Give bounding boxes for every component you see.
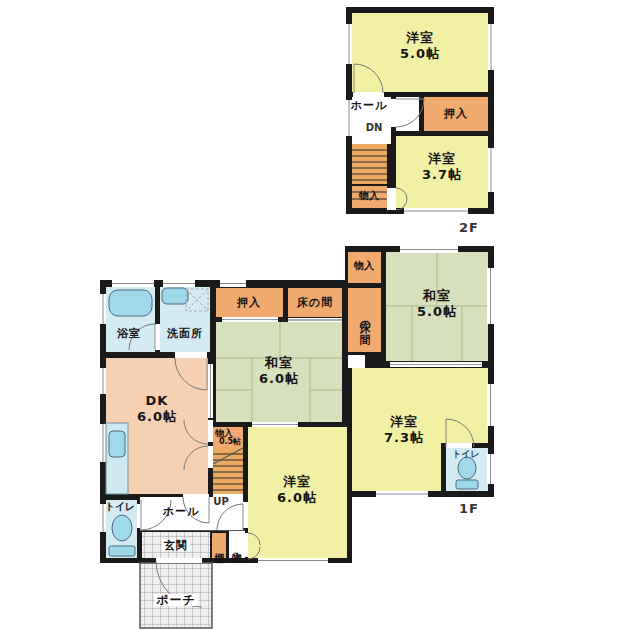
room-size: 3.7帖 bbox=[422, 167, 462, 183]
stairs-up-label: UP bbox=[213, 497, 228, 507]
room-label-genkan: 玄関 bbox=[162, 540, 190, 551]
toilet-tank-right bbox=[456, 480, 478, 489]
closet-monoire-bottom bbox=[229, 530, 245, 558]
room-size: 7.3帖 bbox=[384, 430, 424, 446]
washbasin bbox=[162, 288, 188, 304]
room-label-toilet-left: トイレ bbox=[105, 502, 136, 512]
room-label-western-73: 洋室 7.3帖 bbox=[384, 414, 424, 447]
room-label-washroom: 洗面所 bbox=[167, 328, 203, 339]
room-name: 和室 bbox=[259, 355, 299, 371]
room-name: DK bbox=[137, 393, 177, 409]
room-label-hall-1f: ホール bbox=[163, 506, 200, 517]
closet-label-monoire-2f: 物入 bbox=[359, 191, 379, 201]
closet-label-oshiire-2f: 押入 bbox=[444, 108, 468, 119]
room-label-japanese-5: 和室 5.0帖 bbox=[417, 288, 457, 321]
shelf-tana bbox=[212, 533, 226, 558]
kitchen-sink bbox=[109, 431, 125, 457]
room-label-porch: ポーチ bbox=[154, 594, 198, 606]
room-label-hall-2f: ホール bbox=[351, 100, 388, 111]
room-name: 洋室 bbox=[422, 151, 462, 167]
floor-label-1f: 1F bbox=[459, 502, 479, 515]
room-name: 洋室 bbox=[400, 30, 440, 46]
floor-plan: 洋室 5.0帖 ホール DN 押入 洋室 3.7帖 物入 2F 物入 和室 5.… bbox=[0, 0, 640, 640]
room-label-dk: DK 6.0帖 bbox=[137, 393, 177, 426]
room-name: 洋室 bbox=[384, 414, 424, 430]
room-size: 6.0帖 bbox=[137, 409, 177, 425]
toilet-bowl-right bbox=[458, 457, 476, 479]
room-label-japanese-6: 和室 6.0帖 bbox=[259, 355, 299, 388]
room-label-western-6: 洋室 6.0帖 bbox=[277, 474, 317, 507]
closet-label-oshiire-1f: 押入 bbox=[237, 297, 261, 308]
closet-size-monoire-stairs: 0.5帖 bbox=[219, 438, 241, 446]
room-label-western-5-2f: 洋室 5.0帖 bbox=[400, 30, 440, 63]
room-label-western-37-2f: 洋室 3.7帖 bbox=[422, 151, 462, 184]
toilet-bowl-left bbox=[112, 515, 132, 541]
room-size: 5.0帖 bbox=[417, 304, 457, 320]
room-size: 6.0帖 bbox=[277, 490, 317, 506]
closet-label-monoire-top: 物入 bbox=[354, 261, 374, 271]
room-label-bathroom: 浴室 bbox=[117, 328, 141, 339]
room-label-toilet-right: トイレ bbox=[452, 450, 480, 459]
alcove-label-tokonoma: 床の間 bbox=[297, 297, 333, 308]
room-name: 洋室 bbox=[277, 474, 317, 490]
room-size: 5.0帖 bbox=[400, 46, 440, 62]
bathtub bbox=[109, 290, 152, 316]
floor-plan-drawing bbox=[0, 0, 640, 640]
toilet-tank-left bbox=[109, 546, 135, 556]
floor-label-2f: 2F bbox=[459, 221, 479, 234]
alcove-label-tokonoma-right: 床の間 bbox=[358, 313, 370, 326]
room-name: 和室 bbox=[417, 288, 457, 304]
room-size: 6.0帖 bbox=[259, 371, 299, 387]
stairs-dn-label: DN bbox=[366, 123, 383, 133]
